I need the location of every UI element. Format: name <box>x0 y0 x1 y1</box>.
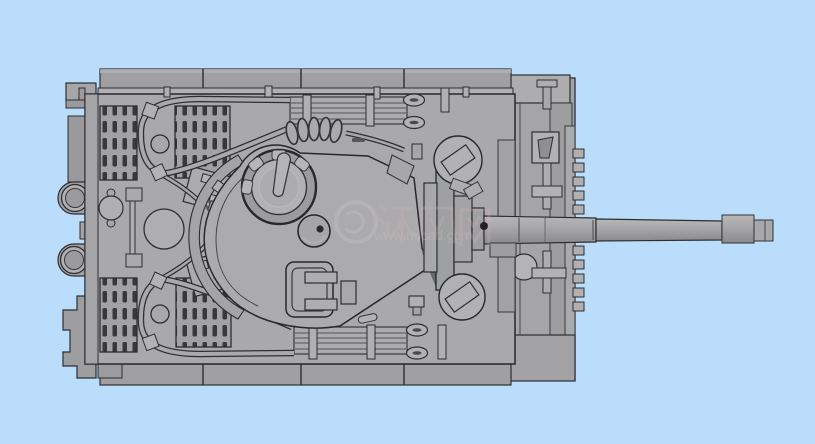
svg-text:www.mfcad.com: www.mfcad.com <box>373 228 472 243</box>
